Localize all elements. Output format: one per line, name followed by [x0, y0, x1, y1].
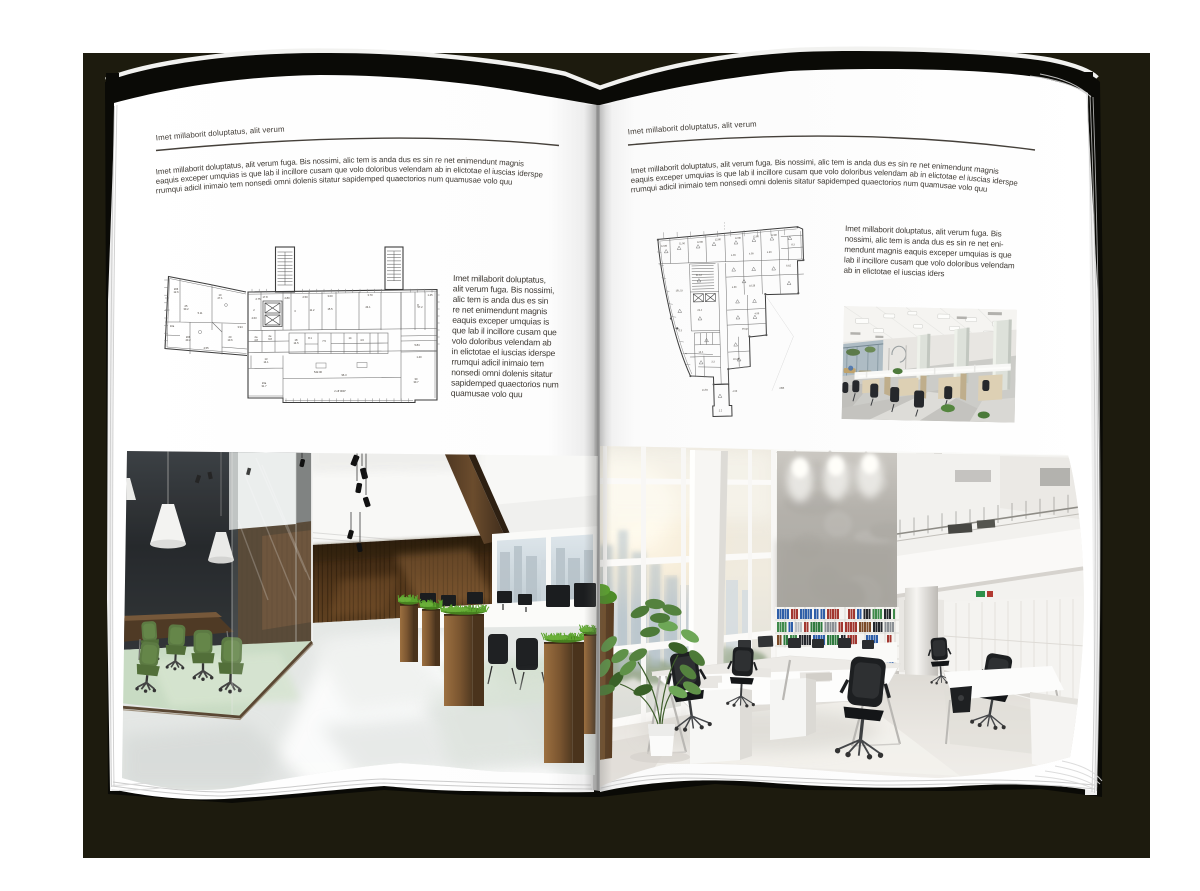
- svg-text:12.80: 12.80: [715, 238, 722, 241]
- svg-text:11.90: 11.90: [679, 242, 686, 245]
- svg-text:12.4: 12.4: [698, 351, 703, 354]
- svg-text:4.99: 4.99: [731, 254, 736, 257]
- svg-text:12.6: 12.6: [173, 290, 179, 294]
- svg-text:2.50: 2.50: [302, 295, 308, 299]
- svg-text:2.80: 2.80: [284, 296, 290, 300]
- svg-text:2 off 0007: 2 off 0007: [334, 389, 346, 393]
- svg-text:17.8: 17.8: [262, 295, 268, 299]
- svg-text:1.40: 1.40: [416, 355, 422, 359]
- svg-text:4.6: 4.6: [360, 338, 364, 342]
- svg-text:96.3: 96.3: [341, 373, 347, 377]
- svg-text:7.5: 7.5: [322, 339, 326, 343]
- svg-text:6.62: 6.62: [786, 264, 791, 267]
- svg-text:3.00: 3.00: [327, 294, 333, 298]
- svg-text:40.2: 40.2: [185, 338, 191, 342]
- svg-text:12.80: 12.80: [661, 245, 668, 248]
- svg-text:12.80: 12.80: [697, 241, 704, 244]
- svg-text:14.5: 14.5: [293, 341, 299, 345]
- svg-text:57.2: 57.2: [417, 305, 423, 309]
- svg-text:16.28: 16.28: [733, 358, 740, 361]
- svg-text:15.5: 15.5: [327, 307, 333, 311]
- svg-text:30.2: 30.2: [183, 307, 189, 311]
- svg-text:5.84: 5.84: [414, 343, 420, 347]
- svg-text:3.70: 3.70: [367, 293, 373, 297]
- svg-text:10.6: 10.6: [227, 338, 233, 342]
- svg-text:12.80: 12.80: [735, 237, 742, 240]
- svg-text:8.1: 8.1: [308, 336, 312, 340]
- svg-text:14.84: 14.84: [702, 389, 709, 392]
- svg-text:542.00: 542.00: [314, 370, 322, 374]
- svg-text:Рекре: Рекре: [742, 328, 749, 331]
- svg-text:4.99: 4.99: [733, 390, 738, 393]
- svg-text:14.1: 14.1: [263, 360, 269, 364]
- svg-text:АБВ: АБВ: [779, 387, 784, 390]
- svg-text:31.7: 31.7: [261, 384, 267, 388]
- svg-text:1.45: 1.45: [427, 293, 433, 297]
- svg-text:4.99: 4.99: [754, 312, 759, 315]
- svg-text:9.8: 9.8: [268, 337, 272, 341]
- svg-text:16.28: 16.28: [749, 284, 756, 287]
- svg-text:24.1: 24.1: [365, 305, 371, 309]
- svg-text:10a: 10a: [170, 324, 175, 328]
- svg-text:4.99: 4.99: [767, 251, 772, 254]
- svg-text:4.55: 4.55: [203, 346, 209, 350]
- svg-text:2.75: 2.75: [255, 297, 261, 301]
- svg-text:4.99: 4.99: [732, 286, 737, 289]
- svg-text:12.80: 12.80: [753, 235, 760, 238]
- svg-text:4.99: 4.99: [749, 252, 754, 255]
- svg-text:3.94: 3.94: [237, 325, 243, 329]
- svg-text:4.63: 4.63: [251, 316, 257, 320]
- svg-text:5.11: 5.11: [198, 311, 203, 315]
- svg-text:11.2: 11.2: [310, 308, 315, 312]
- svg-text:30.7: 30.7: [413, 380, 419, 384]
- svg-text:12.80: 12.80: [771, 234, 778, 237]
- svg-text:quamusae volo quu: quamusae volo quu: [451, 388, 523, 399]
- svg-text:31.12: 31.12: [696, 274, 703, 277]
- svg-text:101.15: 101.15: [676, 289, 684, 292]
- svg-text:4.8: 4.8: [254, 338, 258, 342]
- svg-text:27.1: 27.1: [217, 296, 223, 300]
- svg-text:22.4: 22.4: [697, 309, 702, 312]
